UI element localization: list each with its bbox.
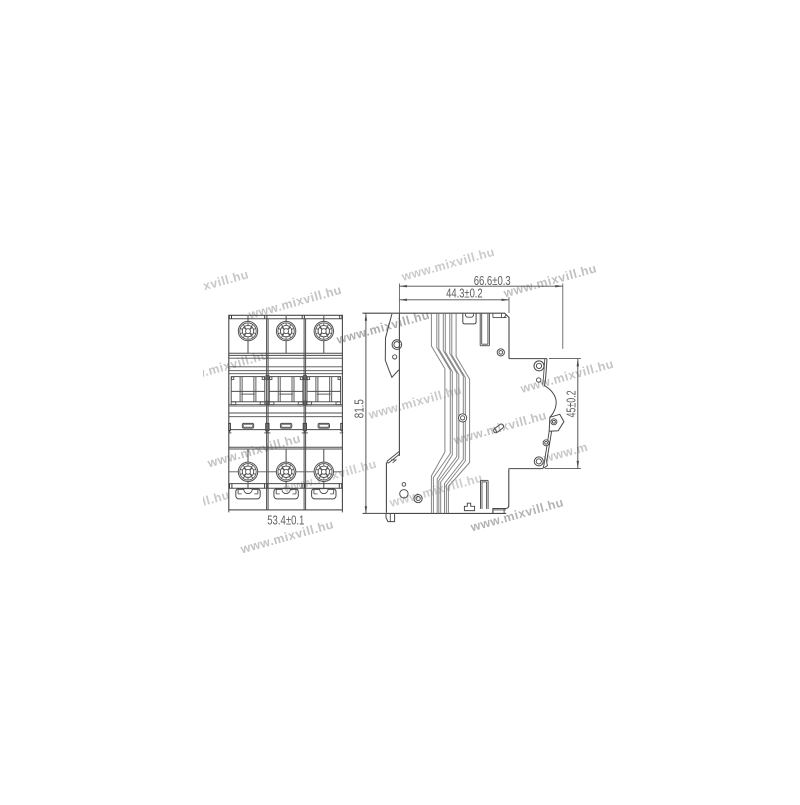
svg-text:44.3±0.2: 44.3±0.2 [446, 285, 483, 300]
svg-text:45±0.2: 45±0.2 [563, 391, 578, 418]
svg-text:53.4±0.1: 53.4±0.1 [267, 513, 304, 528]
svg-text:81.5: 81.5 [352, 399, 367, 418]
